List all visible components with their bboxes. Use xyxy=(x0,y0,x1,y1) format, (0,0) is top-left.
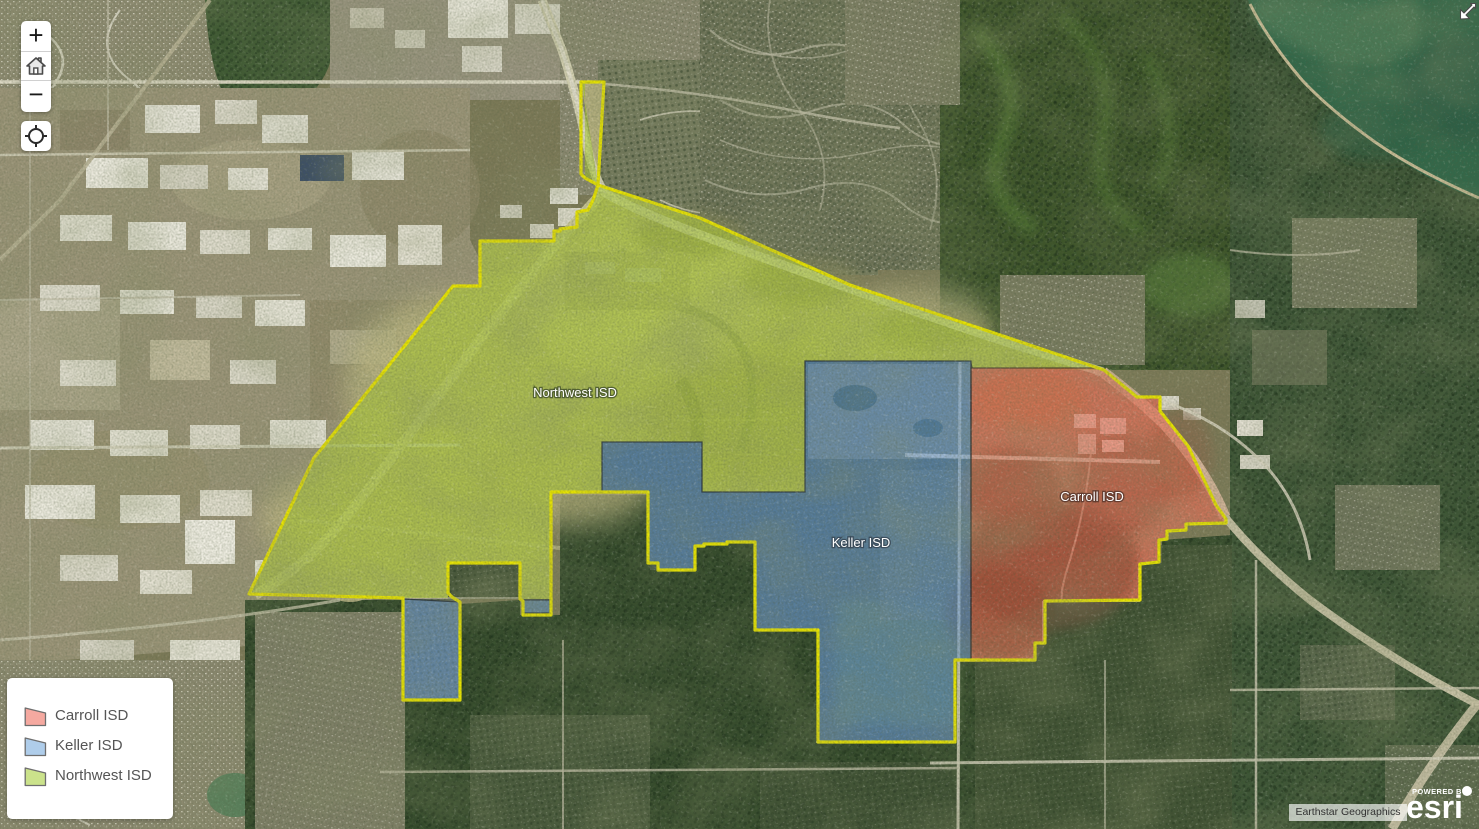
svg-text:Keller ISD: Keller ISD xyxy=(832,535,891,550)
svg-text:Carroll ISD: Carroll ISD xyxy=(1060,489,1124,504)
svg-text:Northwest ISD: Northwest ISD xyxy=(533,385,617,400)
